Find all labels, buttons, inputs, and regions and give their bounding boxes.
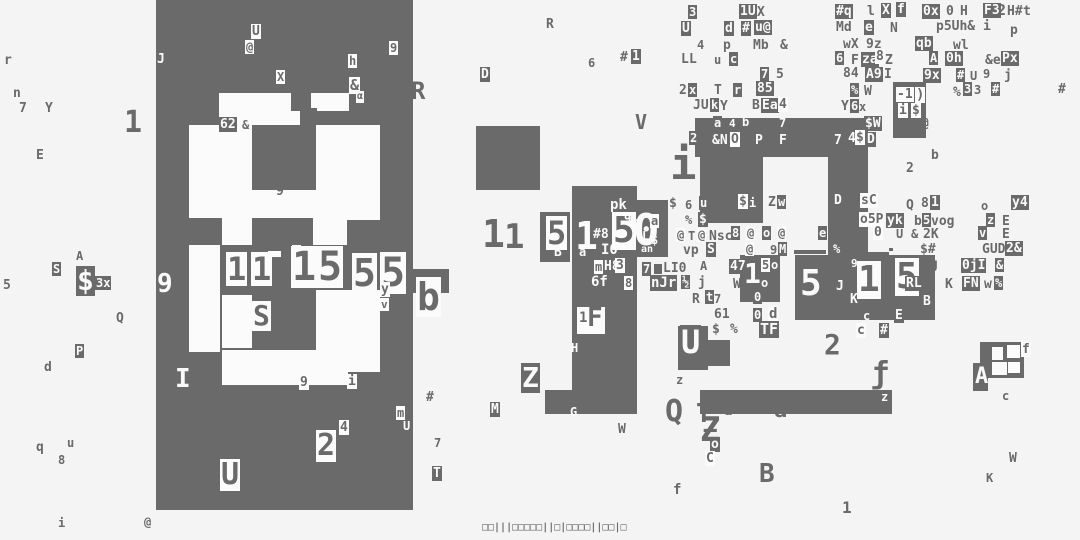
glyph: i — [670, 143, 697, 187]
glyph: 7 — [642, 262, 651, 276]
glyph: % — [994, 276, 1003, 290]
glyph: # — [620, 51, 628, 64]
room-floor — [316, 290, 380, 352]
glyph: # — [956, 68, 965, 82]
glyph: z — [676, 374, 683, 386]
glyph: $ — [712, 323, 720, 336]
glyph: S — [252, 301, 271, 331]
glyph: 7 — [760, 67, 769, 81]
glyph: 2K — [923, 228, 939, 241]
glyph: h — [348, 54, 357, 68]
glyph: B — [922, 294, 932, 309]
glyph: α — [356, 91, 364, 103]
glyph: 9 — [299, 375, 309, 390]
glyph: 5 — [922, 213, 931, 227]
glyph: Z — [521, 363, 540, 393]
glyph: i — [898, 103, 908, 118]
glyph: A — [975, 366, 988, 388]
glyph: @ — [144, 516, 151, 528]
glyph: 2& — [1005, 241, 1023, 256]
glyph: o — [710, 437, 720, 452]
glyph: c — [856, 323, 866, 338]
glyph: L — [681, 53, 689, 66]
glyph: @ — [845, 245, 852, 257]
glyph: q — [36, 441, 44, 454]
glyph: Z — [768, 196, 776, 209]
glyph: F — [779, 134, 787, 147]
glyph: U — [970, 70, 977, 82]
glyph: E — [894, 308, 904, 323]
glyph: $ — [855, 130, 865, 145]
glyph: 1 — [504, 220, 524, 254]
glyph: 84 — [843, 67, 859, 80]
glyph: f — [1021, 342, 1031, 357]
glyph: 9 — [770, 244, 777, 256]
glyph: Y — [720, 100, 728, 113]
glyph: S — [706, 242, 716, 257]
glyph: K — [945, 278, 953, 291]
glyph: 4 — [339, 420, 349, 435]
glyph: 2 — [316, 430, 336, 462]
glyph: &e — [985, 54, 1001, 67]
glyph: i — [983, 20, 991, 33]
glyph: H — [571, 342, 578, 354]
glyph: 7 — [19, 102, 27, 115]
glyph: E — [36, 149, 44, 162]
room-floor — [222, 218, 252, 245]
room-floor — [189, 245, 220, 290]
glyph: # — [1058, 83, 1066, 96]
glyph: y — [380, 282, 390, 297]
glyph: @ — [746, 226, 755, 240]
glyph: @ — [921, 117, 929, 130]
glyph: U — [403, 420, 410, 432]
glyph: 9 — [276, 185, 284, 198]
glyph: &N — [712, 134, 728, 147]
glyph: 61 — [714, 308, 730, 321]
glyph: nJr — [650, 275, 677, 291]
glyph: d — [44, 361, 52, 374]
glyph: U — [251, 24, 261, 39]
glyph: W — [1009, 452, 1017, 465]
glyph: ƒ — [871, 359, 889, 389]
glyph: pk — [610, 198, 627, 212]
glyph: u — [714, 54, 721, 66]
glyph: K — [986, 472, 993, 484]
glyph: #8 — [593, 228, 609, 241]
glyph: o — [981, 200, 988, 212]
room-floor — [992, 347, 1003, 360]
glyph: W — [864, 85, 872, 98]
glyph: 8 — [58, 454, 65, 466]
glyph: wX — [843, 38, 859, 51]
glyph: Mb — [753, 39, 769, 52]
glyph: 1 — [631, 49, 641, 64]
glyph: 5 — [776, 68, 784, 81]
glyph: # — [991, 82, 1000, 96]
glyph: & — [911, 228, 918, 240]
glyph: R — [546, 18, 554, 31]
glyph: b — [416, 277, 441, 317]
room-floor — [992, 362, 1007, 375]
glyph: 62 — [219, 117, 237, 132]
glyph: 7 — [714, 293, 721, 305]
glyph: TF — [759, 321, 779, 338]
glyph: ½ — [681, 275, 690, 289]
glyph: G — [570, 406, 577, 418]
glyph: E — [1002, 228, 1010, 241]
glyph: 2 — [906, 162, 914, 175]
room-floor — [1008, 362, 1020, 373]
glyph: U — [680, 325, 701, 359]
glyph: 4 — [778, 97, 788, 112]
glyph: & — [242, 119, 249, 131]
glyph: U — [681, 21, 691, 36]
glyph: 5 — [761, 258, 770, 272]
glyph: H# — [1007, 5, 1023, 18]
glyph: W — [618, 423, 626, 436]
glyph: 3 — [974, 84, 981, 96]
glyph: @ — [697, 228, 706, 242]
glyph: Y — [45, 102, 53, 115]
glyph: i — [749, 197, 756, 209]
glyph: an — [641, 245, 653, 255]
glyph: 4 — [697, 39, 704, 51]
glyph: X — [276, 70, 285, 84]
glyph: 8 — [921, 197, 929, 210]
glyph: D — [833, 193, 843, 208]
glyph: 3 — [963, 82, 972, 96]
glyph: % — [730, 323, 738, 336]
barcode-strip: □□|||□□□□□||□|□□□□||□□|□ — [482, 523, 627, 533]
glyph: T — [714, 84, 722, 97]
glyph: 0x — [922, 4, 940, 19]
glyph: GUD — [982, 243, 1005, 256]
glyph: $# — [920, 243, 936, 256]
room-floor — [222, 295, 252, 348]
glyph: $ — [76, 266, 95, 296]
glyph: N — [890, 22, 898, 35]
glyph: r — [733, 83, 742, 97]
glyph: 1 — [226, 252, 247, 286]
glyph: # — [741, 21, 751, 36]
glyph: $ — [698, 212, 708, 227]
room-floor — [189, 190, 380, 218]
glyph: -1 — [896, 87, 914, 102]
wall-block — [545, 390, 637, 414]
room-floor — [222, 350, 380, 372]
glyph: p5Uh& — [936, 20, 975, 33]
glyph: z — [881, 391, 888, 403]
glyph: 3 — [688, 5, 697, 19]
glyph: u — [67, 437, 74, 449]
glyph: 1 — [744, 260, 761, 288]
glyph: % — [953, 86, 961, 99]
glyph: 2g — [922, 258, 938, 271]
glyph: r — [4, 54, 12, 67]
glyph: H — [960, 5, 968, 18]
glyph: u — [699, 196, 708, 210]
glyph: 9 — [983, 68, 990, 80]
glyph: 1 — [251, 252, 272, 286]
glyph: 6 — [850, 99, 859, 113]
glyph: P — [755, 134, 763, 147]
wall-block — [889, 248, 893, 251]
room-floor — [189, 290, 220, 352]
glyph: W — [733, 278, 741, 291]
glyph: $W — [864, 116, 882, 131]
glyph: FN — [962, 276, 980, 291]
glyph: vp — [683, 244, 699, 257]
glyph: % — [850, 83, 859, 97]
glyph: w — [777, 195, 786, 209]
glyph: Md — [836, 21, 852, 34]
glyph: D — [866, 132, 876, 147]
glyph: p — [723, 39, 731, 52]
glyph: @ — [245, 40, 254, 54]
glyph: R — [692, 293, 700, 306]
glyph: u@ — [754, 20, 772, 35]
glyph: Q — [665, 397, 683, 427]
glyph: M — [778, 242, 787, 256]
glyph: T — [432, 466, 442, 481]
glyph: v — [978, 226, 987, 240]
glyph: 9 — [624, 213, 631, 225]
glyph: i — [347, 374, 357, 389]
glyph: P — [75, 344, 84, 358]
glyph: T — [688, 230, 695, 242]
glyph: 6 — [685, 199, 692, 211]
glyph: z — [986, 213, 995, 227]
glyph: yk — [886, 213, 904, 228]
glyph: e — [864, 20, 874, 35]
glyph: A — [76, 250, 83, 262]
glyph: 1 — [124, 108, 142, 138]
glyph: j — [1004, 69, 1012, 82]
glyph: b — [742, 116, 749, 128]
glyph: 2 — [824, 331, 841, 359]
glyph: 8 — [624, 276, 633, 290]
glyph: Q — [906, 199, 914, 212]
wall-block — [855, 252, 889, 255]
glyph: % — [685, 214, 692, 226]
glyph: v — [380, 298, 389, 311]
glyph: A — [929, 51, 938, 65]
glyph: 6 — [588, 57, 595, 69]
glyph: a — [713, 116, 722, 130]
glyph: 7 — [779, 117, 786, 129]
glyph: 0 — [946, 5, 954, 18]
room-floor — [222, 372, 348, 385]
glyph: D — [480, 67, 490, 82]
glyph: 1 — [842, 500, 852, 516]
glyph: sC — [860, 193, 878, 208]
glyph: Z — [885, 54, 893, 67]
glyph: @ — [777, 226, 786, 240]
glyph: A9 — [865, 67, 883, 82]
glyph: 6 — [835, 51, 844, 65]
glyph: 6 — [843, 228, 850, 240]
glyph: S — [52, 262, 61, 276]
glyph: o — [770, 258, 779, 272]
wall-block — [794, 250, 826, 254]
glyph: t — [1023, 5, 1031, 18]
glitch-dungeon-map: rn7Y1EAS5$3x9QPdqu8i@JU@Xh&α962&9111555y… — [0, 0, 1080, 540]
glyph: t — [705, 290, 714, 304]
glyph: 2 — [689, 131, 698, 145]
glyph: U — [896, 228, 903, 240]
glyph: 3x — [95, 276, 111, 290]
glyph: $ — [911, 103, 921, 118]
glyph: w — [984, 278, 992, 291]
glyph: I — [884, 68, 892, 81]
glyph: o — [762, 226, 771, 240]
glyph: K — [850, 293, 858, 306]
glyph: L — [642, 230, 649, 242]
glyph: b — [931, 149, 939, 162]
glyph: l — [867, 5, 875, 18]
glyph: 5 — [3, 279, 11, 292]
glyph: B — [759, 461, 775, 487]
glyph: # — [879, 323, 889, 338]
glyph: n — [13, 87, 21, 100]
glyph: a — [579, 246, 586, 258]
glyph: 8 — [875, 49, 885, 64]
glyph: 0jI — [961, 258, 986, 273]
glyph: $ — [669, 197, 677, 210]
glyph: 5 — [317, 246, 343, 288]
glyph: 9 — [389, 41, 398, 55]
glyph: k — [710, 98, 719, 112]
glyph: $ — [738, 194, 748, 209]
glyph: X — [881, 3, 891, 18]
wall-block — [700, 157, 763, 223]
glyph: J — [836, 280, 844, 293]
glyph: Y — [841, 100, 849, 113]
glyph: a — [650, 214, 659, 228]
glyph: X — [757, 6, 765, 19]
glyph: Ea — [761, 98, 779, 113]
glyph: x — [688, 83, 697, 97]
glyph: qb — [915, 36, 933, 51]
glyph: e — [818, 226, 827, 240]
glyph: LI0 — [663, 262, 686, 275]
glyph: p — [1010, 24, 1018, 37]
glyph: 4 — [729, 118, 736, 129]
glyph: 9 — [157, 271, 173, 297]
glyph: 1U — [739, 4, 757, 19]
glyph: I — [175, 366, 191, 392]
room-floor — [313, 218, 347, 245]
glyph: c — [863, 310, 870, 322]
glyph: x — [859, 101, 866, 113]
glyph: Px — [1001, 51, 1019, 66]
glyph: RL — [905, 276, 923, 291]
glyph: Q — [116, 312, 124, 325]
glyph: F — [587, 305, 603, 331]
glyph: 7 — [834, 134, 842, 147]
glyph: 1 — [930, 195, 940, 210]
glyph: 5 — [352, 253, 377, 293]
glyph: 1 — [291, 246, 317, 288]
glyph: JU — [693, 99, 709, 112]
glyph: O — [730, 132, 740, 147]
glyph: % — [833, 243, 840, 255]
glyph: 1 — [839, 308, 846, 320]
glyph: @ — [745, 242, 754, 256]
glyph: U — [220, 459, 240, 491]
glyph: # — [426, 391, 434, 404]
glyph: 2 — [635, 218, 642, 229]
wall-block — [312, 111, 349, 125]
glyph: m — [396, 406, 405, 420]
glyph: & — [780, 39, 788, 52]
glyph: 3 — [615, 258, 625, 273]
glyph: 7 — [434, 437, 441, 449]
glyph: 2 — [997, 3, 1006, 18]
glyph: C — [705, 451, 715, 466]
glyph: 8 — [731, 226, 740, 240]
glyph: A — [700, 260, 707, 272]
glyph: 5 — [800, 266, 822, 302]
glyph: 2 — [679, 84, 687, 97]
glyph: 9x — [923, 68, 941, 83]
glyph: 6f — [591, 275, 608, 289]
room-floor — [1007, 345, 1020, 358]
glyph: #q — [835, 4, 853, 19]
glyph: j — [698, 276, 706, 289]
glyph: a — [774, 400, 787, 422]
glyph: c — [729, 52, 738, 66]
glyph: R — [411, 79, 425, 103]
wall-block — [476, 126, 540, 190]
glyph: J — [157, 53, 165, 66]
glyph: M — [490, 402, 500, 417]
wall-block — [700, 340, 730, 366]
glyph: L — [689, 53, 697, 66]
glyph: 85 — [756, 81, 774, 96]
glyph: 1 — [857, 261, 881, 299]
glyph: B — [554, 246, 562, 259]
glyph: i — [58, 517, 65, 529]
glyph: 0 — [753, 290, 762, 304]
glyph: ) — [915, 87, 925, 103]
glyph: 8 — [770, 274, 776, 284]
glyph: d — [724, 21, 734, 36]
glyph: & — [995, 258, 1004, 272]
wall-block — [654, 264, 662, 274]
glyph: 0h — [945, 51, 963, 66]
glyph: m — [594, 260, 603, 274]
glyph: y4 — [1011, 195, 1029, 210]
glyph: B — [752, 99, 760, 112]
glyph: o — [760, 276, 769, 290]
glyph: V — [635, 112, 647, 132]
glyph: I0 — [601, 243, 618, 257]
glyph: @ — [676, 228, 685, 242]
glyph: & — [724, 405, 732, 418]
glyph: c — [1002, 390, 1009, 402]
glyph: 1 — [482, 215, 505, 253]
glyph: 0 — [873, 225, 883, 240]
glyph: f — [896, 2, 906, 17]
glyph: f — [673, 483, 681, 497]
